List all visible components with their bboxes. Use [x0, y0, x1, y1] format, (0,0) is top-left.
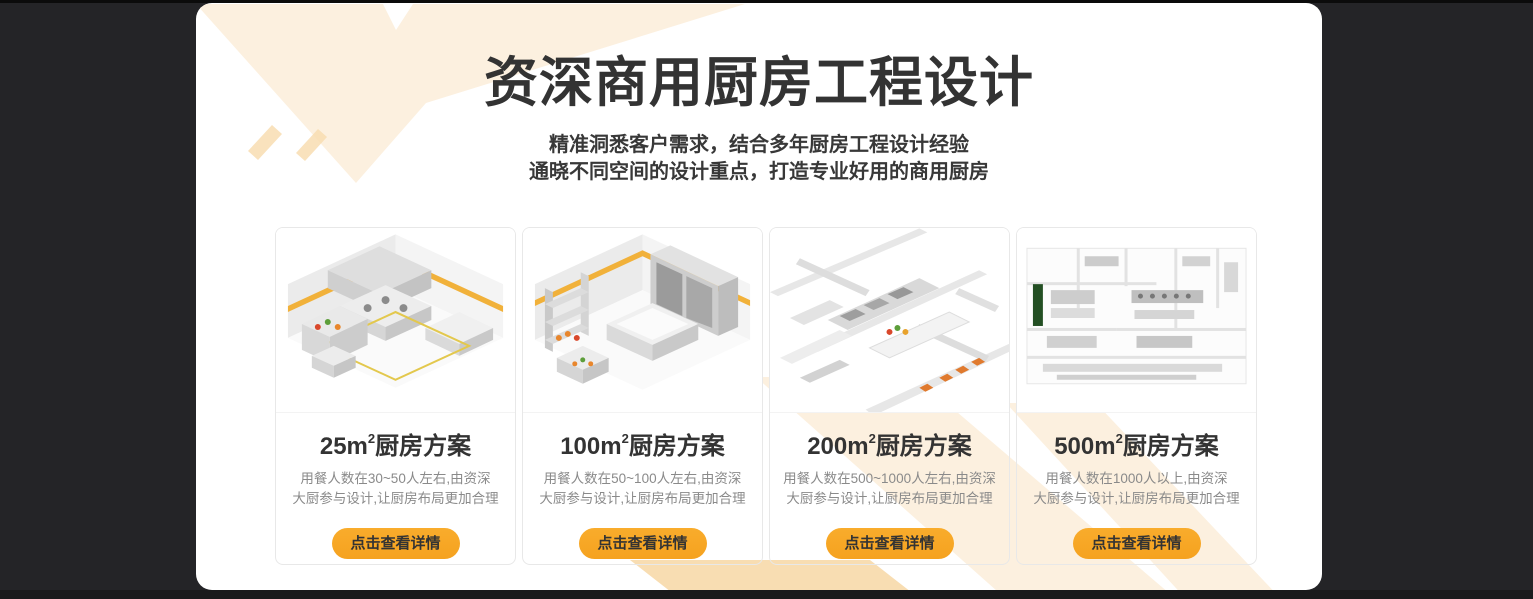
kitchen-render-25sqm-image: [276, 228, 515, 413]
plan-card-title: 200m2厨房方案: [770, 427, 1009, 461]
plan-card-description: 用餐人数在30~50人左右,由资深 大厨参与设计,让厨房布局更加合理: [276, 469, 515, 509]
plan-card-description: 用餐人数在500~1000人左右,由资深 大厨参与设计,让厨房布局更加合理: [770, 469, 1009, 509]
view-details-button[interactable]: 点击查看详情: [579, 528, 707, 559]
plan-card-title: 100m2厨房方案: [523, 427, 762, 461]
page-background: { "page": { "width": 1533, "height": 599…: [0, 0, 1533, 599]
plan-card-200sqm: 200m2厨房方案 用餐人数在500~1000人左右,由资深 大厨参与设计,让厨…: [769, 227, 1010, 565]
plan-cards-row: 25m2厨房方案 用餐人数在30~50人左右,由资深 大厨参与设计,让厨房布局更…: [275, 227, 1257, 565]
plan-card-25sqm: 25m2厨房方案 用餐人数在30~50人左右,由资深 大厨参与设计,让厨房布局更…: [275, 227, 516, 565]
view-details-button[interactable]: 点击查看详情: [332, 528, 460, 559]
kitchen-render-200sqm-image: [770, 228, 1009, 413]
kitchen-render-100sqm-image: [523, 228, 762, 413]
subtitle-line-2: 通晓不同空间的设计重点，打造专业好用的商用厨房: [196, 159, 1322, 185]
plan-card-100sqm: 100m2厨房方案 用餐人数在50~100人左右,由资深 大厨参与设计,让厨房布…: [522, 227, 763, 565]
plan-card-description: 用餐人数在50~100人左右,由资深 大厨参与设计,让厨房布局更加合理: [523, 469, 762, 509]
page-title: 资深商用厨房工程设计: [196, 53, 1322, 113]
plan-card-500sqm: 500m2厨房方案 用餐人数在1000人以上,由资深 大厨参与设计,让厨房布局更…: [1016, 227, 1257, 565]
bottom-dark-strip: [0, 590, 1533, 599]
content-panel: 资深商用厨房工程设计 精准洞悉客户需求，结合多年厨房工程设计经验 通晓不同空间的…: [196, 3, 1322, 590]
plan-card-title: 25m2厨房方案: [276, 427, 515, 461]
view-details-button[interactable]: 点击查看详情: [1073, 528, 1201, 559]
subtitle-line-1: 精准洞悉客户需求，结合多年厨房工程设计经验: [196, 132, 1322, 158]
kitchen-render-500sqm-image: [1017, 228, 1256, 413]
view-details-button[interactable]: 点击查看详情: [826, 528, 954, 559]
plan-card-title: 500m2厨房方案: [1017, 427, 1256, 461]
plan-card-description: 用餐人数在1000人以上,由资深 大厨参与设计,让厨房布局更加合理: [1017, 469, 1256, 509]
